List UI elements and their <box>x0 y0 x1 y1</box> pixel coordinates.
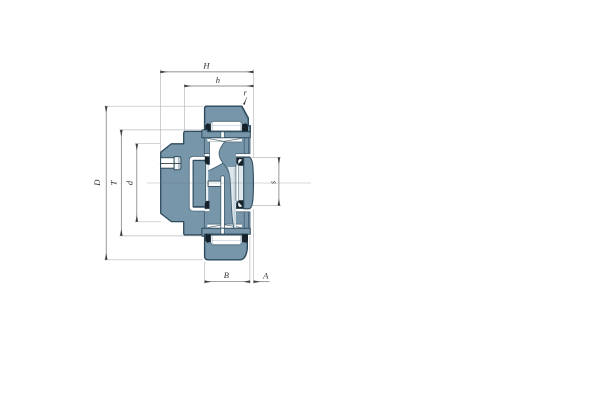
svg-text:B: B <box>224 270 229 280</box>
svg-text:H: H <box>202 60 210 70</box>
svg-text:d: d <box>124 180 134 185</box>
svg-text:r: r <box>244 88 248 98</box>
svg-text:A: A <box>262 271 269 281</box>
svg-text:D: D <box>92 179 102 187</box>
svg-text:s: s <box>267 180 277 184</box>
svg-text:T: T <box>109 179 119 185</box>
svg-text:h: h <box>216 75 220 85</box>
